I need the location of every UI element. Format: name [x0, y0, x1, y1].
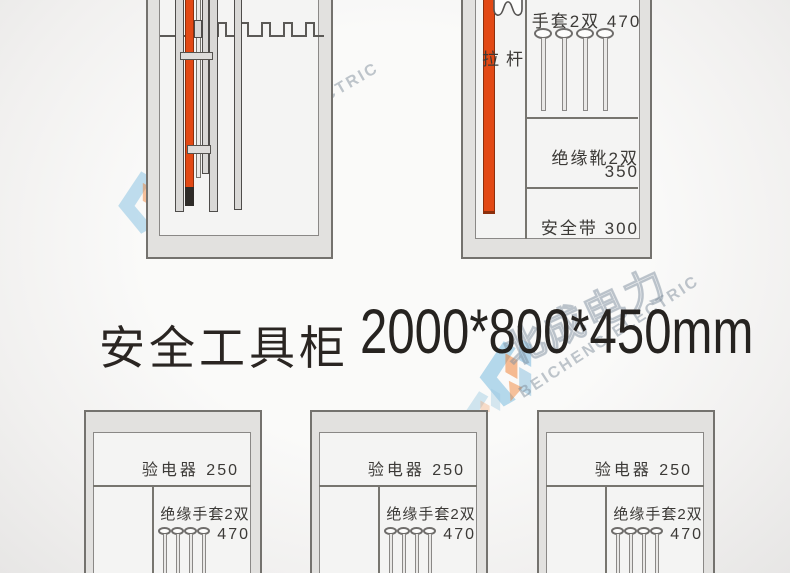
shelf-boots-value: 350: [527, 162, 639, 182]
glove-peg: [596, 28, 614, 111]
glove-peg: [611, 527, 624, 573]
column-divider: [378, 485, 380, 573]
electroscope-label: 验电器 250: [319, 456, 465, 480]
electroscope-label: 验电器 250: [93, 456, 239, 480]
cabinet-electroscope-3: 验电器 250 绝缘手套2双 470: [537, 410, 715, 573]
pull-rod-orange: [483, 0, 495, 214]
insulated-rod: [175, 0, 184, 212]
rod-grip: [185, 187, 194, 206]
insulated-rod: [234, 0, 242, 210]
column-divider: [152, 485, 154, 573]
rod-clamp-fork: [492, 0, 526, 20]
glove-peg: [184, 527, 197, 573]
glove-peg: [158, 527, 171, 573]
glove-peg: [534, 28, 552, 111]
glove-peg: [555, 28, 573, 111]
product-illustration: 北成电力 BEICHENG ELECTRIC 北成电力 BEICHENG ELE…: [0, 0, 790, 573]
cabinet-rod-storage: [146, 0, 333, 259]
insulated-rod: [209, 0, 218, 212]
shelf-belt-label: 安全带 300: [527, 214, 639, 239]
shelf-divider: [93, 485, 251, 487]
electroscope-label: 验电器 250: [546, 456, 692, 480]
glove-peg: [637, 527, 650, 573]
gloves-value: 470: [667, 526, 703, 544]
glove-peg: [576, 28, 594, 111]
rod-bracket: [180, 52, 213, 60]
shelf-divider: [527, 187, 638, 189]
glove-peg: [197, 527, 210, 573]
glove-peg: [171, 527, 184, 573]
glove-peg: [384, 527, 397, 573]
glove-peg: [423, 527, 436, 573]
column-divider: [605, 485, 607, 573]
gloves-value: 470: [440, 526, 476, 544]
glove-peg: [410, 527, 423, 573]
cabinet-shelves: 拉杆 手套2双 470 绝缘靴2双 350 安全带 300: [461, 0, 652, 259]
rod-bracket: [187, 145, 211, 154]
gloves-label: 绝缘手套2双: [155, 503, 255, 524]
product-title: 安全工具柜: [99, 312, 349, 378]
operating-rod-orange: [185, 0, 194, 206]
pull-rod-label: 拉杆: [482, 45, 530, 70]
product-dimensions: 2000*800*450mm: [360, 301, 753, 364]
glove-peg: [624, 527, 637, 573]
cabinet-electroscope-1: 验电器 250 绝缘手套2双 470: [84, 410, 262, 573]
glove-peg: [650, 527, 663, 573]
gloves-label: 绝缘手套2双: [608, 503, 708, 524]
shelf-divider: [546, 485, 704, 487]
column-divider: [525, 0, 527, 239]
cabinet-electroscope-2: 验电器 250 绝缘手套2双 470: [310, 410, 488, 573]
hanger-hook: [194, 20, 202, 38]
gloves-label: 绝缘手套2双: [381, 503, 481, 524]
gloves-value: 470: [214, 526, 250, 544]
glove-peg: [397, 527, 410, 573]
shelf-divider: [527, 117, 638, 119]
shelf-divider: [319, 485, 477, 487]
watermark-fragment: [452, 378, 522, 412]
